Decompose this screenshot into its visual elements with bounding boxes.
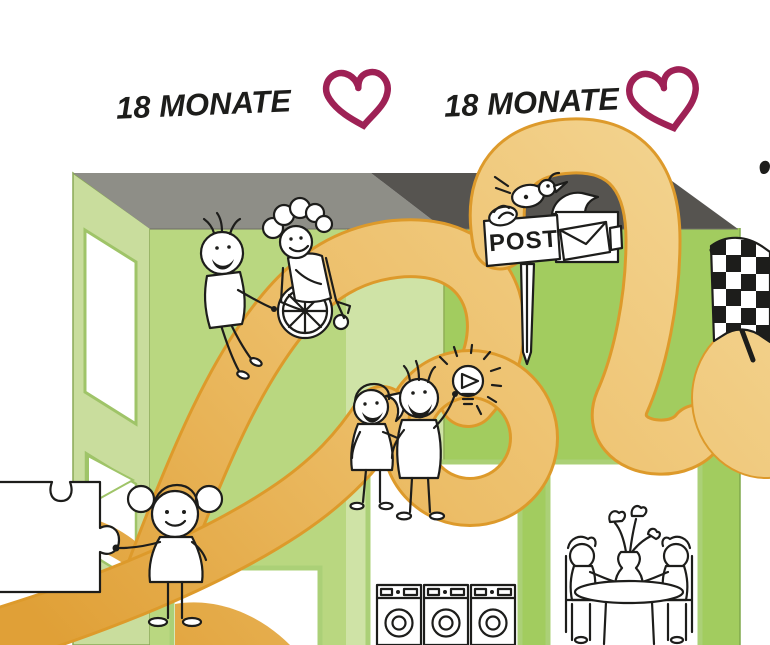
post-sign-label: POST [488, 226, 554, 258]
cut-off-mark [760, 161, 770, 174]
infographic-illustration: 18 MONATE 18 MONATE POST [0, 0, 770, 645]
washing-machine-icon [377, 585, 515, 645]
envelope-icon [560, 222, 610, 260]
heart-icon-1 [324, 67, 392, 130]
window-left-face [85, 230, 136, 424]
heart-icon-2 [626, 62, 705, 136]
phase-label-1: 18 MONATE [115, 83, 292, 127]
phase-label-2: 18 MONATE [443, 81, 620, 125]
